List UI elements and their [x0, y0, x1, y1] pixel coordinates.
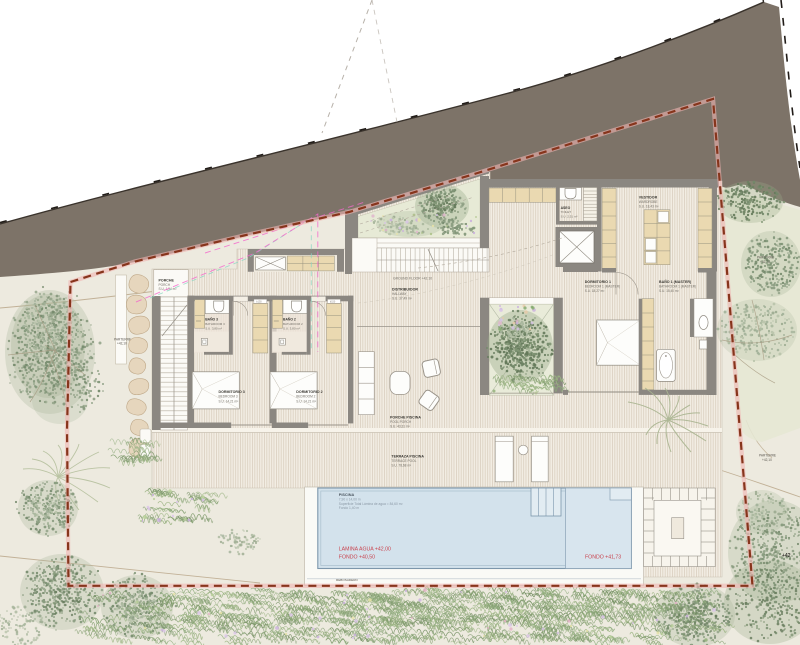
svg-text:S.U. 37,49 m²: S.U. 37,49 m²	[392, 297, 412, 301]
svg-text:BAÑO 1 (MASTER): BAÑO 1 (MASTER)	[659, 279, 692, 284]
svg-text:TERRAZA PISCINA: TERRAZA PISCINA	[391, 455, 424, 459]
svg-text:BEDROOM 2: BEDROOM 2	[296, 395, 315, 399]
svg-text:VESTIDOR: VESTIDOR	[639, 196, 658, 200]
svg-text:FONDO +40,50: FONDO +40,50	[339, 555, 375, 561]
svg-text:S.U. 43,31 m²: S.U. 43,31 m²	[390, 425, 410, 429]
svg-text:S.U. 14,21 m²: S.U. 14,21 m²	[219, 399, 239, 403]
svg-text:DORMITORIO 3: DORMITORIO 3	[219, 390, 245, 394]
svg-text:PORCHE PISCINA: PORCHE PISCINA	[390, 416, 421, 420]
svg-text:b150: b150	[256, 301, 262, 304]
svg-text:HALLWAY: HALLWAY	[392, 292, 408, 296]
svg-text:BAÑO 3: BAÑO 3	[205, 317, 218, 322]
svg-text:S.U. 18,27 m²: S.U. 18,27 m²	[585, 289, 605, 293]
svg-text:S.U. 3,80 m²: S.U. 3,80 m²	[283, 326, 300, 330]
svg-text:DISTRIBUIDOR: DISTRIBUIDOR	[392, 288, 418, 292]
svg-text:Fondo 1,40 m: Fondo 1,40 m	[339, 506, 360, 510]
svg-text:PISCINA: PISCINA	[339, 493, 355, 497]
svg-text:S.U. 78,68 m²: S.U. 78,68 m²	[391, 464, 411, 468]
svg-text:BEDROOM 1 (MASTER): BEDROOM 1 (MASTER)	[585, 285, 620, 289]
svg-text:+42,10: +42,10	[117, 342, 127, 346]
svg-text:S.U. 14,21 m²: S.U. 14,21 m²	[296, 399, 316, 403]
svg-text:WARDROBE: WARDROBE	[639, 200, 658, 204]
svg-text:LAMINA AGUA +42,00: LAMINA AGUA +42,00	[339, 547, 391, 553]
svg-text:FONDO +41,73: FONDO +41,73	[585, 555, 621, 561]
svg-text:BATHROOM 1 (MASTER): BATHROOM 1 (MASTER)	[659, 285, 696, 289]
svg-text:BAÑO 2: BAÑO 2	[283, 317, 296, 322]
svg-text:S.U. 15,40 m²: S.U. 15,40 m²	[659, 289, 679, 293]
svg-text:S.U. 18,43 m²: S.U. 18,43 m²	[639, 204, 659, 208]
svg-text:REBOSADERO: REBOSADERO	[336, 578, 358, 582]
svg-text:TERRACE POOL: TERRACE POOL	[391, 459, 416, 463]
svg-text:POOL PORCH: POOL PORCH	[390, 420, 412, 424]
svg-text:DORMITORIO 2: DORMITORIO 2	[296, 390, 322, 394]
svg-text:b150: b150	[330, 301, 336, 304]
svg-text:BEDROOM 3: BEDROOM 3	[219, 395, 238, 399]
svg-text:S.U. 3,80 m²: S.U. 3,80 m²	[205, 326, 222, 330]
svg-text:S.U. 2,51 m²: S.U. 2,51 m²	[561, 214, 578, 218]
svg-text:DORMITORIO 1: DORMITORIO 1	[585, 280, 611, 284]
svg-text:GROUND FLOOR +42.10: GROUND FLOOR +42.10	[393, 277, 432, 281]
